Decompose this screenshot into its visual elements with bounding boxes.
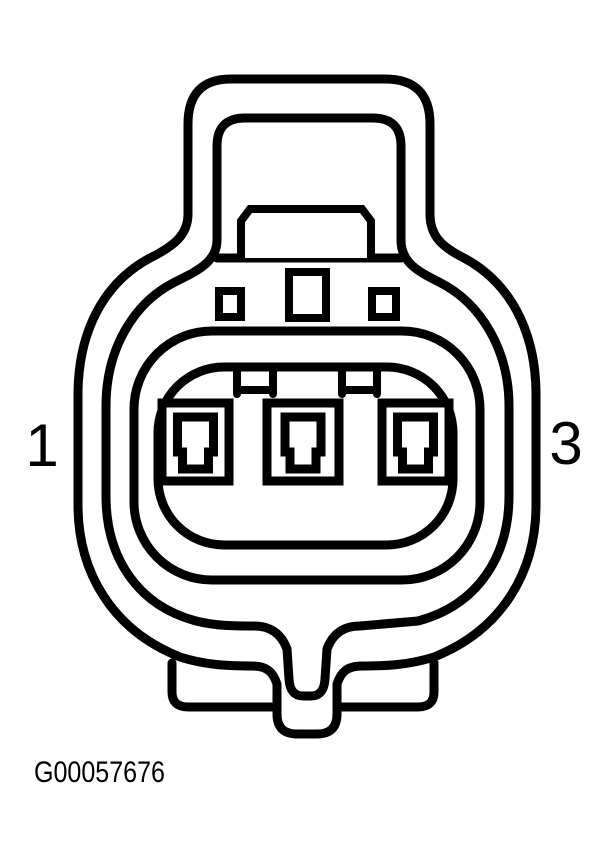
- connector-diagram-svg: 1 3 G00057676: [0, 0, 613, 856]
- pin-label-3: 3: [549, 410, 582, 477]
- connector-diagram-page: 1 3 G00057676: [0, 0, 613, 856]
- figure-caption: G00057676: [34, 756, 165, 789]
- pin-label-1: 1: [25, 412, 58, 479]
- latch-tab-wedge: [241, 209, 371, 258]
